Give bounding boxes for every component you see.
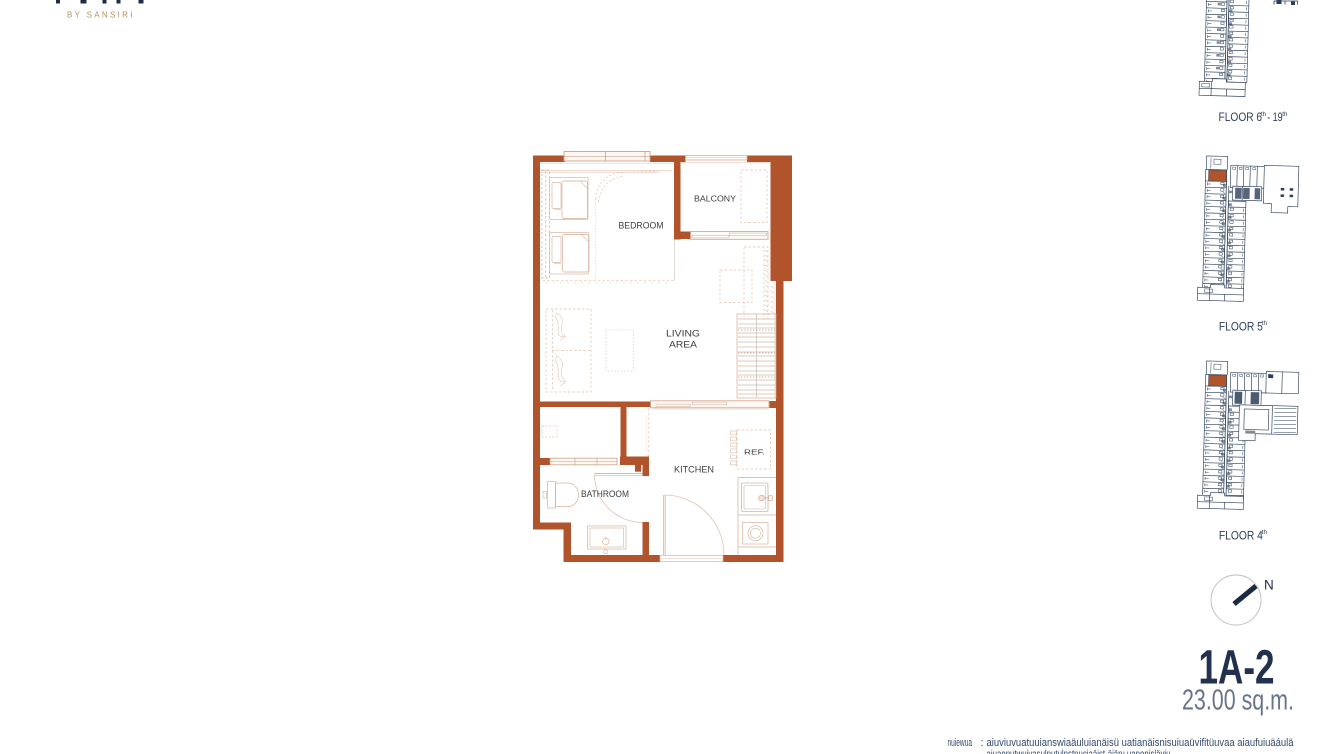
svg-text:th: th xyxy=(1261,111,1267,118)
svg-text:REF.: REF. xyxy=(744,447,765,456)
svg-text:th: th xyxy=(1262,529,1268,536)
svg-text:nuiewua: nuiewua xyxy=(948,737,973,749)
svg-text:BALCONY: BALCONY xyxy=(694,193,736,203)
svg-text:aiuviuvuatuuianswiaäuluianäisü: aiuviuvuatuuianswiaäuluianäisü uatianäis… xyxy=(987,737,1295,749)
svg-text:N: N xyxy=(1264,578,1274,593)
svg-text:th: th xyxy=(1282,111,1288,118)
svg-text:23.00 sq.m.: 23.00 sq.m. xyxy=(1182,685,1294,717)
svg-text:KITCHEN: KITCHEN xyxy=(674,464,714,474)
svg-text:FLOOR 4: FLOOR 4 xyxy=(1219,529,1263,543)
svg-text::: : xyxy=(981,737,984,749)
svg-text:LIVING: LIVING xyxy=(666,329,700,339)
svg-text:BEDROOM: BEDROOM xyxy=(619,220,664,230)
svg-text:- 19: - 19 xyxy=(1267,110,1283,124)
svg-text:aiuaonutwuiyasulnutulnstnuçiaä: aiuaonutwuiyasulnutulnstnuçiaäist-äiäry … xyxy=(987,748,1171,754)
svg-text:BY SANSIRI: BY SANSIRI xyxy=(67,11,135,20)
svg-text:AREA: AREA xyxy=(669,339,697,349)
svg-text:FLOOR 6: FLOOR 6 xyxy=(1219,110,1263,124)
svg-text:BATHROOM: BATHROOM xyxy=(581,489,629,499)
svg-text:FLOOR 5: FLOOR 5 xyxy=(1219,319,1263,333)
svg-text:th: th xyxy=(1262,320,1268,327)
